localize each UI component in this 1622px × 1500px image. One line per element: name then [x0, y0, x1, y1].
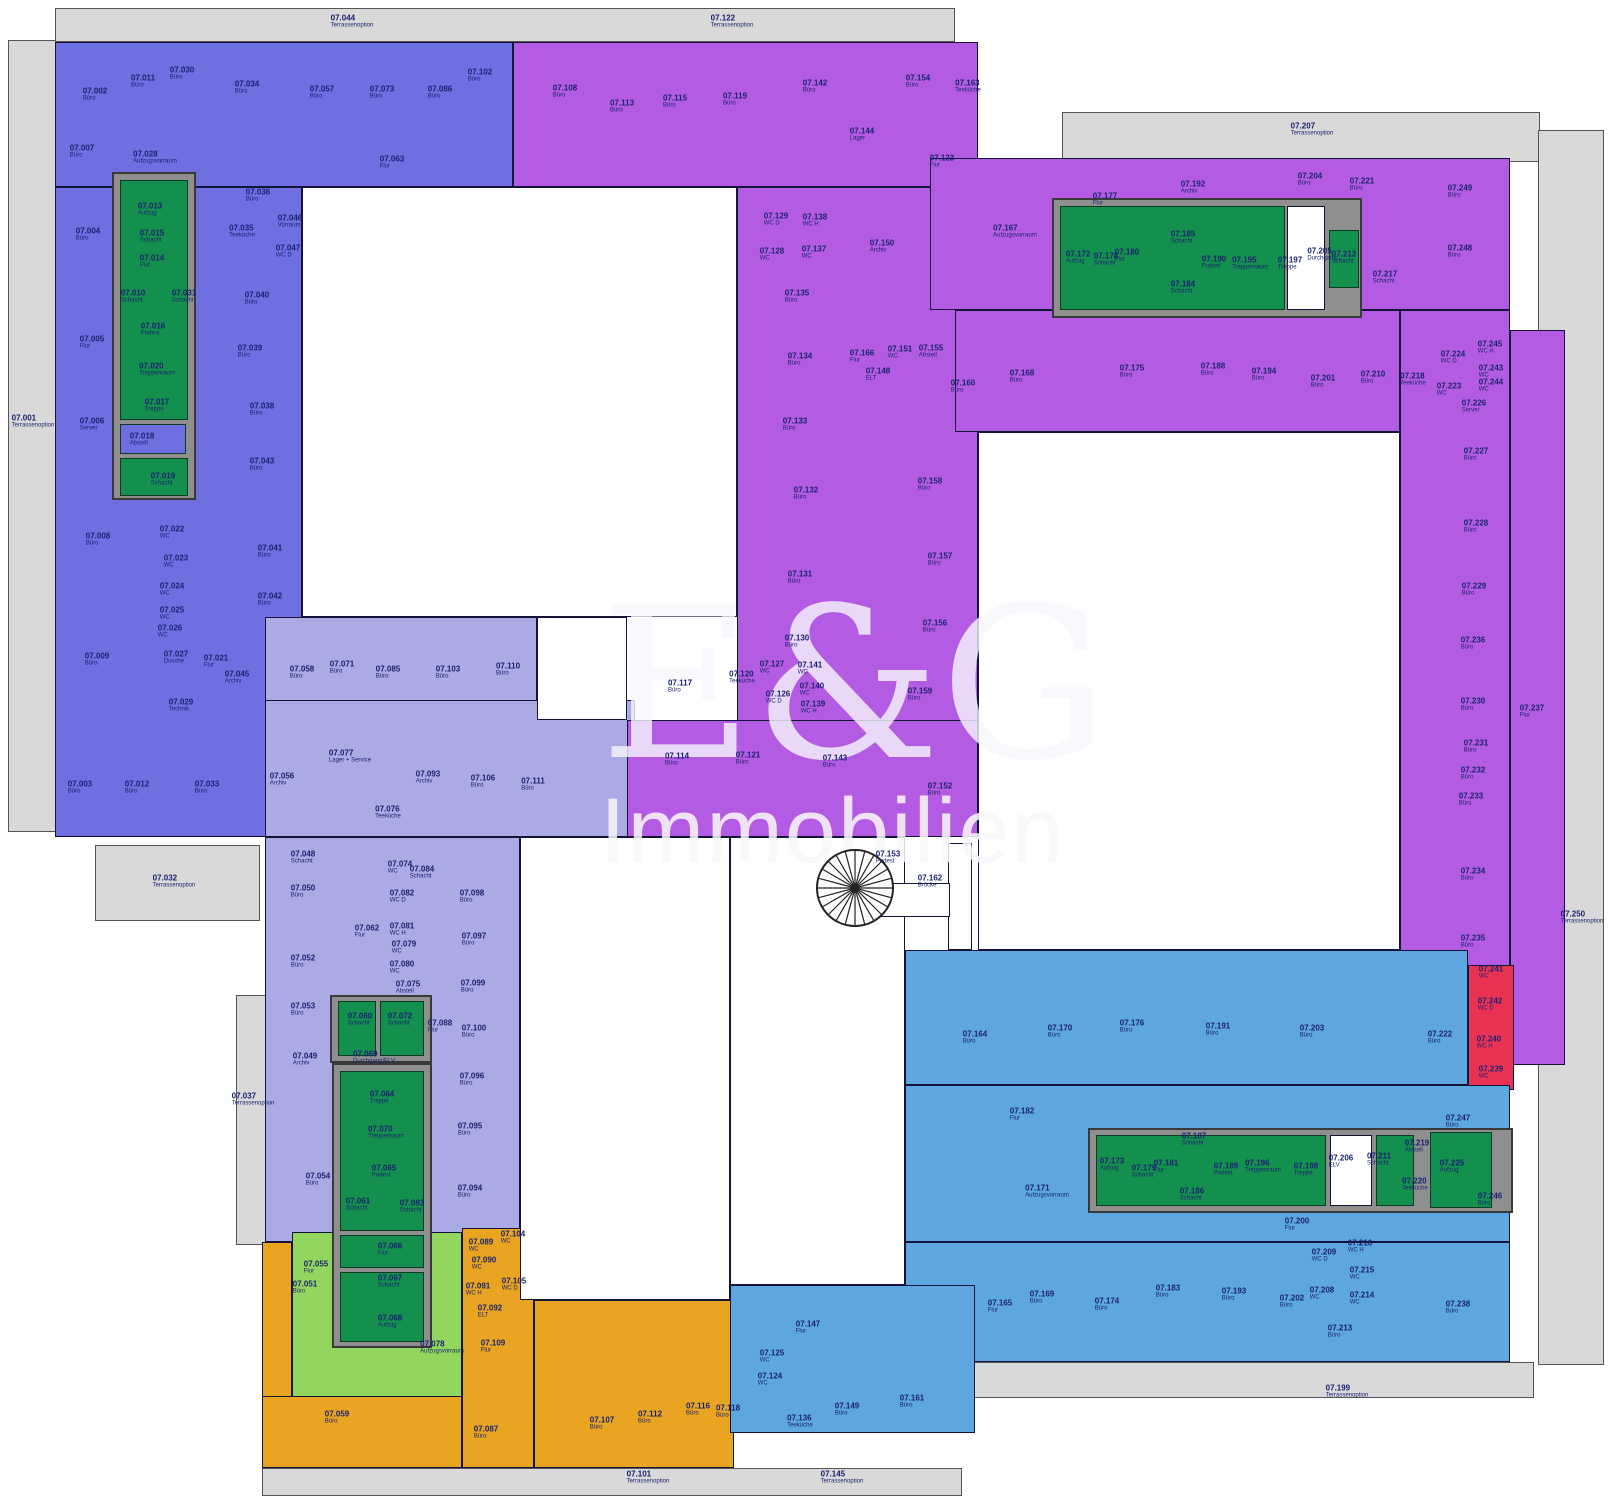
zone-purple-botrow [627, 720, 978, 837]
terrace-left [8, 40, 56, 832]
zone-lightblue-toprow [905, 950, 1468, 1085]
core5-g3 [1430, 1132, 1492, 1208]
zone-orange-left [262, 1396, 462, 1468]
core2-stairs [1160, 210, 1260, 306]
terrace-bottom-right [962, 1362, 1534, 1398]
floor-plan: E&G Immobilien 07.002Büro07.011Büro07.03… [0, 0, 1622, 1500]
courtyard-bottom-a [520, 837, 730, 1300]
terrace-bottom [262, 1468, 962, 1496]
terrace-top [55, 8, 955, 42]
room-number: 07.117 [668, 680, 692, 688]
core4-lift [340, 1272, 424, 1342]
zone-lightblue-botrow [905, 1242, 1510, 1362]
courtyard-left [302, 187, 737, 617]
terrace-left-lower [236, 995, 266, 1245]
core1-schacht [120, 458, 188, 496]
terrace-top-right [1062, 112, 1540, 162]
core5-white [1330, 1135, 1372, 1206]
terrace-mid-left [95, 845, 260, 921]
core3-g2 [380, 1001, 424, 1056]
core5-stairs [1232, 1140, 1320, 1200]
room-label: 07.117Büro [668, 680, 692, 695]
core4-flur [340, 1235, 424, 1268]
zone-purple-rightrow [955, 310, 1400, 432]
courtyard-gap [537, 617, 627, 720]
room-type: Büro [668, 688, 692, 694]
zone-lavender-band [265, 700, 635, 837]
core5-g2 [1376, 1135, 1414, 1206]
core4-stairs [342, 1090, 422, 1180]
zone-purple-rightflur [1510, 330, 1565, 1065]
core2-green2 [1329, 230, 1359, 288]
core1-stairs [122, 335, 186, 415]
zone-darkblue-top [55, 42, 513, 187]
zone-orange-bottom [534, 1300, 734, 1468]
zone-red-wc [1468, 965, 1514, 1090]
courtyard-right [978, 432, 1400, 950]
zone-lightblue-strip [730, 1285, 975, 1433]
zone-purple-topband [513, 42, 978, 187]
core1-abstell [120, 424, 186, 454]
core2-white [1287, 206, 1325, 310]
podest-strip [875, 883, 950, 917]
room-number: 07.162 [918, 875, 942, 883]
core3-g1 [338, 1001, 376, 1056]
zone-purple-rightcol [1400, 310, 1510, 967]
bridge [948, 843, 972, 950]
